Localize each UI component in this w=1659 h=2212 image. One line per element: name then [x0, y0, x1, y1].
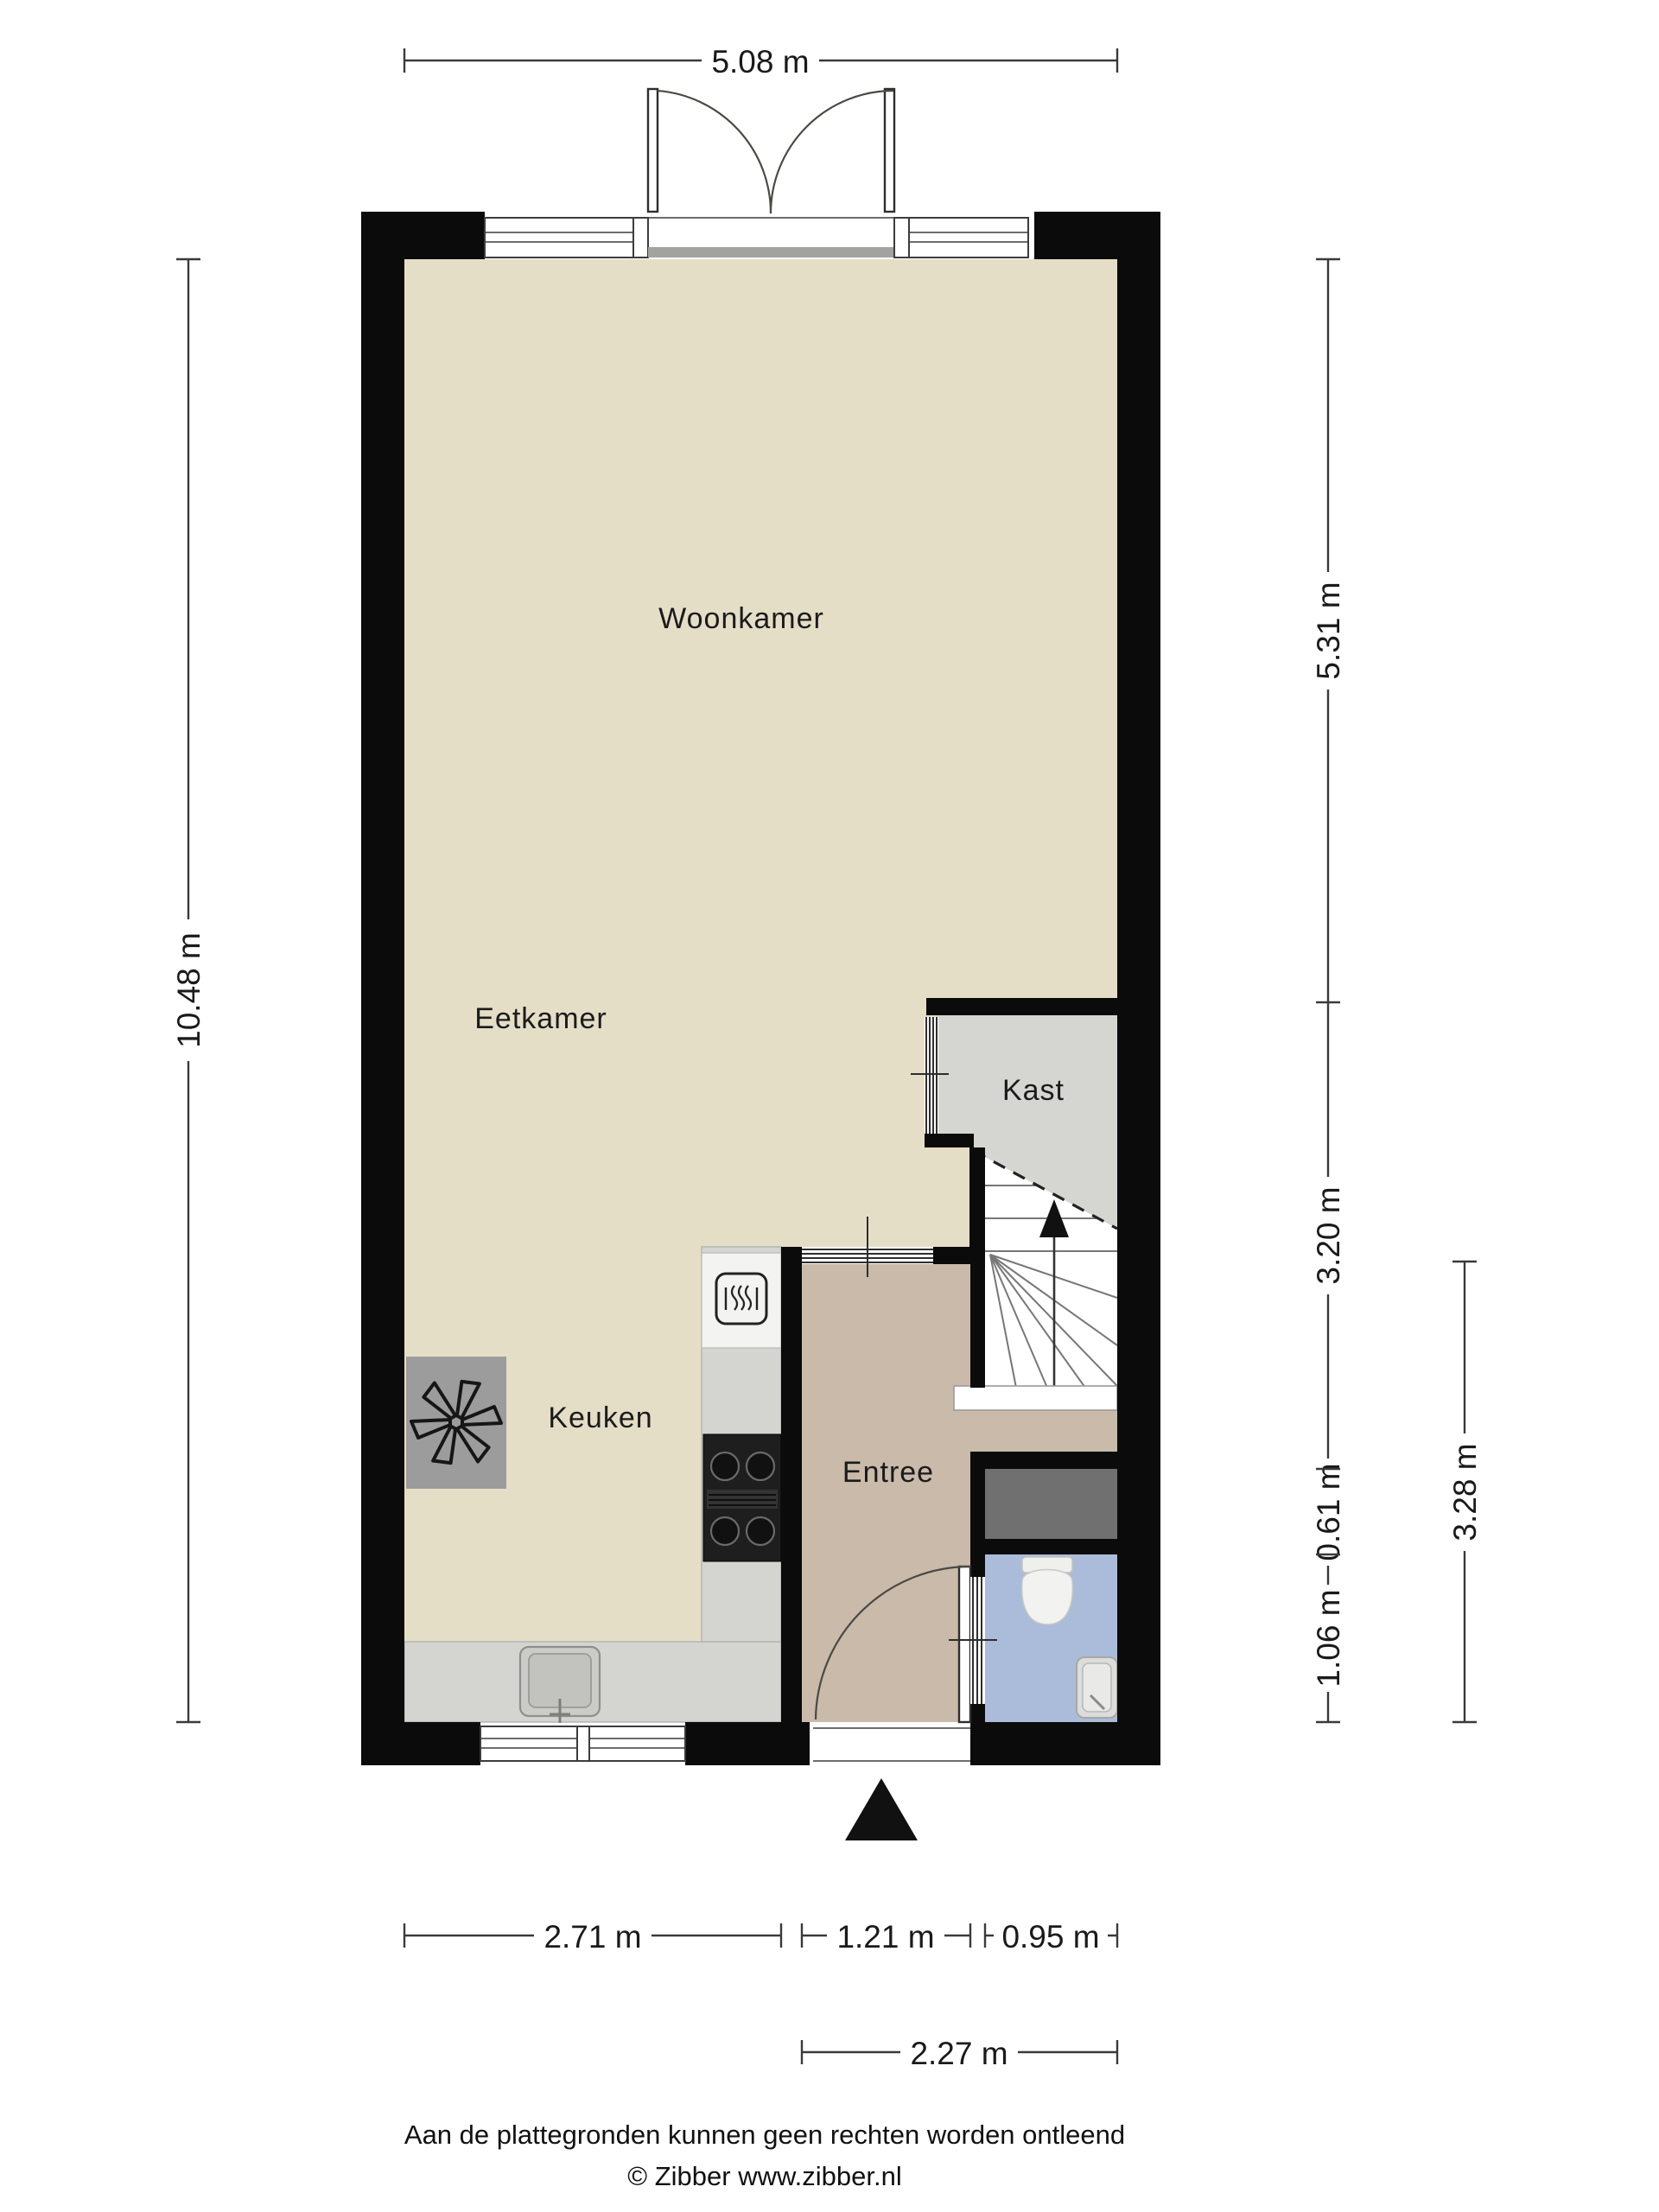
entree-floor — [802, 1264, 970, 1722]
dim-label-bottom-outer: 2.27 m — [910, 2036, 1007, 2071]
dim-label-left: 10.48 m — [171, 932, 207, 1048]
footer-disclaimer: Aan de plattegronden kunnen geen rechten… — [404, 2120, 1125, 2150]
stove-icon — [703, 1434, 781, 1561]
dim-left: 10.48 m — [168, 259, 209, 1722]
dim-label-right-outer: 3.28 m — [1447, 1443, 1483, 1541]
oven-block — [702, 1253, 781, 1348]
room-label-kast: Kast — [1002, 1074, 1065, 1107]
dim-bottom-row1: 2.71 m 1.21 m 0.95 m — [404, 1915, 1117, 1956]
window-icon — [480, 1726, 685, 1761]
stair-entree-wall — [970, 1247, 985, 1388]
dim-label-top: 5.08 m — [711, 44, 809, 79]
window-icon — [909, 218, 1028, 257]
room-label-keuken: Keuken — [548, 1402, 652, 1434]
dim-label-right-living: 5.31 m — [1311, 582, 1346, 679]
dim-label-bottom-door: 1.21 m — [836, 1919, 934, 1955]
room-label-entree: Entree — [842, 1456, 934, 1489]
dim-label-right-stairs: 3.20 m — [1311, 1186, 1346, 1284]
hand-basin-icon — [1077, 1657, 1117, 1718]
dim-right-outer: 3.28 m — [1444, 1262, 1485, 1722]
dim-label-right-meterkast: 0.61 m — [1311, 1463, 1346, 1560]
toilet-icon — [1022, 1557, 1073, 1624]
dim-label-bottom-toilet: 0.95 m — [1001, 1919, 1099, 1955]
footer-credit: © Zibber www.zibber.nl — [627, 2161, 901, 2191]
stair-landing — [954, 1386, 1117, 1410]
dim-top: 5.08 m — [404, 40, 1117, 81]
room-label-eetkamer: Eetkamer — [474, 1002, 607, 1035]
kitchen-entree-wall — [781, 1247, 802, 1722]
dim-label-bottom-kitchen: 2.71 m — [543, 1919, 641, 1955]
kast-top-wall — [926, 998, 1117, 1015]
meterkast-top-wall — [970, 1452, 1117, 1469]
dim-bottom-row2: 2.27 m — [802, 2031, 1117, 2073]
dim-label-right-toilet: 1.06 m — [1311, 1589, 1346, 1687]
top-wall-openings — [485, 89, 1028, 257]
ventilation-unit — [406, 1357, 506, 1489]
footer: Aan de plattegronden kunnen geen rechten… — [404, 2120, 1125, 2191]
room-label-woonkamer: Woonkamer — [658, 602, 824, 635]
window-icon — [485, 218, 633, 257]
sink-icon — [520, 1647, 600, 1723]
dim-right-inner: 5.31 m 3.20 m 0.61 m 1.06 m — [1307, 259, 1349, 1722]
meterkast-bottom-wall — [970, 1539, 1117, 1554]
entrance-arrow-icon — [845, 1778, 918, 1840]
meterkast-floor — [985, 1469, 1117, 1539]
floor-plan: Woonkamer Eetkamer Kast Keuken Entree 5.… — [0, 0, 1659, 2212]
french-doors-icon — [648, 89, 894, 257]
